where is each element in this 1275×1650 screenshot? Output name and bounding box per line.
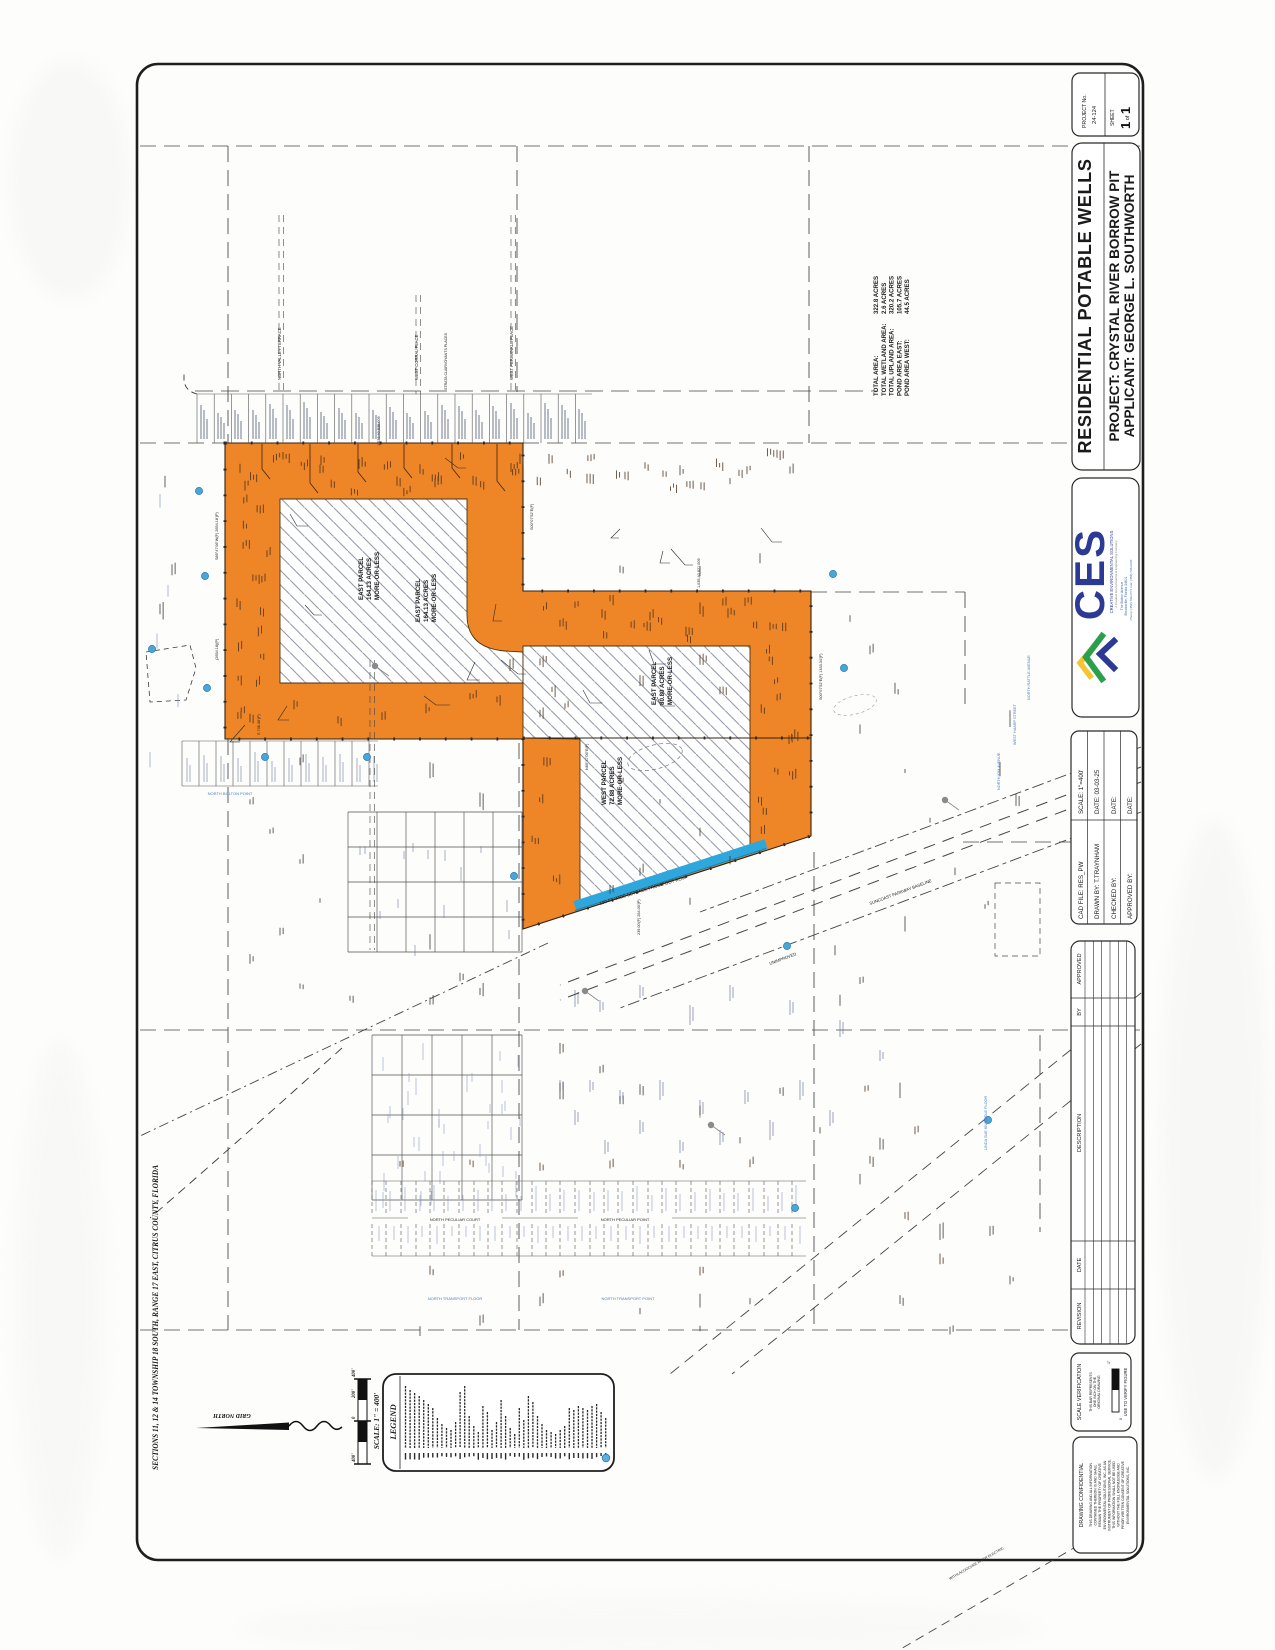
svg-text:S 706.36'(F): S 706.36'(F) — [257, 713, 261, 735]
svg-text:CHECKED BY:: CHECKED BY: — [1111, 877, 1118, 919]
svg-text:SCALE: 1"=400': SCALE: 1"=400' — [1078, 770, 1085, 815]
svg-text:0: 0 — [1119, 1418, 1123, 1420]
svg-text:ENVIRONMENTAL SOLUTIONS, INC.: ENVIRONMENTAL SOLUTIONS, INC. AS AN — [1103, 1460, 1107, 1529]
svg-text:USE TO VERIFY FIGURE: USE TO VERIFY FIGURE — [1123, 1367, 1128, 1416]
svg-text:EAST PARCEL: EAST PARCEL — [651, 662, 658, 705]
svg-text:164.13 ACRES: 164.13 ACRES — [423, 580, 430, 622]
svg-text:PRIOR WRITTEN CONSENT OF CREAT: PRIOR WRITTEN CONSENT OF CREATIVE — [1121, 1460, 1125, 1529]
svg-text:NORTH KIM AVENUE: NORTH KIM AVENUE — [997, 752, 1001, 790]
svg-text:ENVIRONMENTAL SOLUTIONS, INC.: ENVIRONMENTAL SOLUTIONS, INC. — [1126, 1466, 1130, 1524]
svg-text:Brooksville, Florida 34601: Brooksville, Florida 34601 — [1124, 576, 1128, 615]
svg-text:24-124: 24-124 — [1092, 105, 1098, 124]
svg-text:REMAIN THE PROPERTY OF CREATIV: REMAIN THE PROPERTY OF CREATIVE — [1098, 1462, 1102, 1526]
svg-text:DRAWN BY: T.TRAYNHAM: DRAWN BY: T.TRAYNHAM — [1094, 844, 1101, 919]
svg-text:WEST PERIWINKLE PLACE: WEST PERIWINKLE PLACE — [509, 326, 514, 380]
svg-text:MORE-OR-LESS: MORE-OR-LESS — [374, 552, 381, 600]
svg-text:WEST CORRAL PLACE: WEST CORRAL PLACE — [414, 334, 419, 380]
svg-text:72.88 ACRES: 72.88 ACRES — [609, 766, 616, 805]
svg-text:DESCRIPTION: DESCRIPTION — [1077, 1114, 1083, 1152]
svg-text:1,033,40,535.009: 1,033,40,535.009 — [377, 416, 381, 446]
svg-text:80.80 ACRES: 80.80 ACRES — [659, 666, 666, 705]
svg-text:400': 400' — [352, 1368, 357, 1378]
svg-text:SHEET: SHEET — [1110, 109, 1116, 126]
svg-text:N89°47'06"E(F): N89°47'06"E(F) — [585, 743, 589, 770]
svg-text:APPROVED: APPROVED — [1077, 953, 1083, 984]
svg-text:APPROVED BY:: APPROVED BY: — [1127, 873, 1134, 919]
svg-text:(2654.18)(P): (2654.18)(P) — [215, 638, 219, 660]
svg-text:CES: CES — [1066, 528, 1113, 620]
svg-text:TOTAL WETLAND AREA:2.6 ACRES: TOTAL WETLAND AREA:2.6 ACRES — [881, 283, 888, 396]
svg-text:S00°07'52"E(F) 1333.34'(F): S00°07'52"E(F) 1333.34'(F) — [819, 653, 823, 700]
svg-text:APPLICANT: GEORGE L. SOUTHWORT: APPLICANT: GEORGE L. SOUTHWORTH — [1122, 175, 1137, 438]
svg-text:400': 400' — [352, 1453, 357, 1463]
svg-text:DATE:: DATE: — [1111, 796, 1118, 814]
svg-text:SCALE: 1" = 400': SCALE: 1" = 400' — [372, 1393, 381, 1450]
svg-text:MORE-OR-LESS: MORE-OR-LESS — [667, 657, 674, 705]
svg-text:DATE:: DATE: — [1127, 796, 1134, 814]
svg-text:REVISION: REVISION — [1077, 1303, 1083, 1330]
svg-text:A Creative Environmental & Eng: A Creative Environmental & Engineering C… — [1114, 540, 1118, 608]
svg-text:CAD FILE: RES_PW: CAD FILE: RES_PW — [1078, 861, 1085, 919]
svg-text:DRAWING CONFIDENTIAL: DRAWING CONFIDENTIAL — [1079, 1463, 1085, 1527]
svg-text:NORTH BOLTON POINT: NORTH BOLTON POINT — [208, 791, 253, 796]
svg-text:NORTH TRANSPORT POINT: NORTH TRANSPORT POINT — [601, 1296, 655, 1301]
svg-text:NORTH PECULIAR POINT: NORTH PECULIAR POINT — [601, 1217, 650, 1222]
svg-text:S89°47'06"W(F) 2654.18'(P): S89°47'06"W(F) 2654.18'(P) — [215, 511, 219, 560]
svg-text:NORTH TRANSPORT FLOOR: NORTH TRANSPORT FLOOR — [428, 1296, 483, 1301]
svg-text:RESIDENTIAL POTABLE WELLS: RESIDENTIAL POTABLE WELLS — [1075, 158, 1095, 453]
svg-text:NORTH RATTLE AVENUE: NORTH RATTLE AVENUE — [1027, 655, 1031, 700]
svg-text:THIS INFORMATION SHALL NOT BE: THIS INFORMATION SHALL NOT BE USED — [1112, 1461, 1116, 1529]
svg-text:DATE: DATE — [1077, 1257, 1083, 1272]
svg-text:LEGEND: LEGEND — [388, 1404, 398, 1440]
svg-text:200': 200' — [352, 1389, 357, 1399]
svg-text:LINDA SUE KNOWDLE FLOOR: LINDA SUE KNOWDLE FLOOR — [984, 1096, 988, 1150]
svg-text:GRID NORTH: GRID NORTH — [213, 1412, 251, 1418]
svg-text:S00°07'52"E(F): S00°07'52"E(F) — [530, 503, 534, 530]
svg-text:EAST PARCEL: EAST PARCEL — [415, 579, 422, 622]
svg-text:NORTH VALLEY TERRACE: NORTH VALLEY TERRACE — [277, 327, 282, 380]
svg-text:ORIGINAL DRAWING: ORIGINAL DRAWING — [1097, 1375, 1101, 1409]
svg-text:PROJECT No.: PROJECT No. — [1082, 94, 1088, 128]
svg-text:WEST PARCEL: WEST PARCEL — [601, 760, 608, 805]
svg-text:BY: BY — [1077, 1008, 1083, 1016]
svg-text:DATE: 03-03-25: DATE: 03-03-25 — [1094, 769, 1101, 814]
svg-text:WITHOUT THE FULL KNOWLEDGE AND: WITHOUT THE FULL KNOWLEDGE AND — [1117, 1463, 1121, 1527]
svg-text:PROJECT: CRYSTAL RIVER BORROW: PROJECT: CRYSTAL RIVER BORROW PIT — [1107, 170, 1122, 442]
svg-text:STRATA CLAIRVOYANTS PLACES: STRATA CLAIRVOYANTS PLACES — [444, 332, 448, 390]
svg-text:MORE-OR-LESS: MORE-OR-LESS — [431, 574, 438, 622]
svg-text:1,035,40,621.009: 1,035,40,621.009 — [697, 558, 701, 588]
svg-text:SECTIONS 11, 12 & 14 TOWNSHIP: SECTIONS 11, 12 & 14 TOWNSHIP 18 SOUTH, … — [150, 1165, 160, 1470]
svg-text:Phone: (352) 796-0771 Fax: (: Phone: (352) 796-0771 Fax: (352) 796-063… — [1129, 559, 1133, 620]
svg-text:SCALE VERIFICATION: SCALE VERIFICATION — [1077, 1364, 1083, 1421]
svg-text:239.00'(F) 264.00'(P): 239.00'(F) 264.00'(P) — [637, 899, 641, 935]
svg-text:NORTH PECULIAR COURT: NORTH PECULIAR COURT — [430, 1217, 481, 1222]
svg-text:TOTAL UPLAND AREA:320.2 ACRES: TOTAL UPLAND AREA:320.2 ACRES — [889, 276, 896, 396]
svg-text:THIS DRAWING AND ALL INFORMATI: THIS DRAWING AND ALL INFORMATION — [1089, 1462, 1093, 1526]
svg-text:EAST PARCEL: EAST PARCEL — [358, 557, 365, 600]
svg-text:164.13 ACRES: 164.13 ACRES — [366, 558, 373, 600]
svg-text:INSTRUMENT OF PROFESSIONAL SER: INSTRUMENT OF PROFESSIONAL SERVICE. — [1107, 1459, 1111, 1531]
svg-text:CONTAINED THEREON IS AND SHALL: CONTAINED THEREON IS AND SHALL — [1094, 1464, 1098, 1525]
svg-text:WEST HAARP STREET: WEST HAARP STREET — [1013, 703, 1017, 745]
